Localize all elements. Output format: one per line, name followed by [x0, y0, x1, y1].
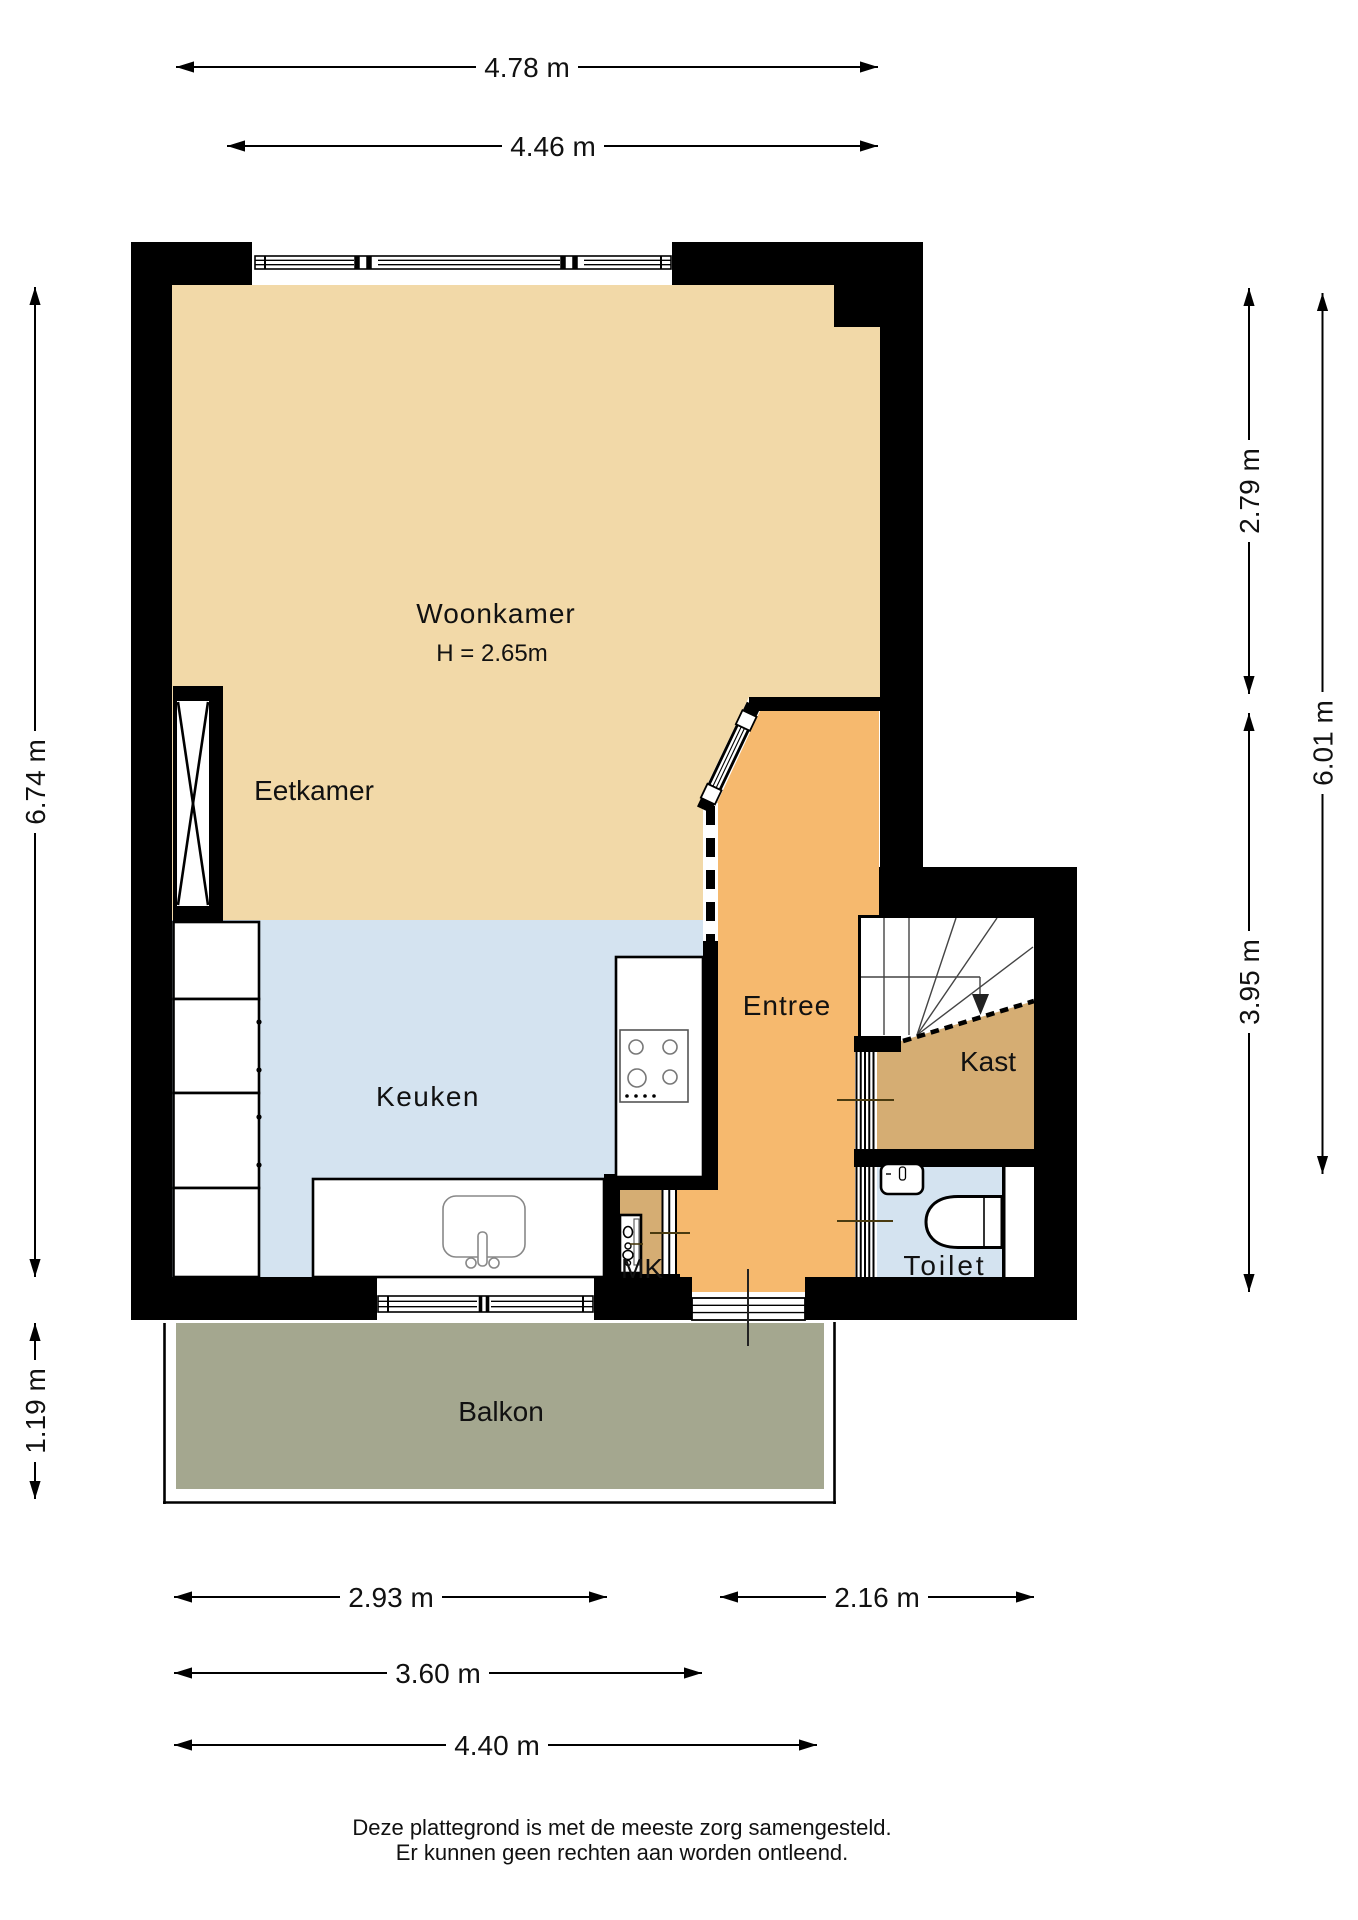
svg-text:1.19 m: 1.19 m	[20, 1368, 51, 1454]
svg-text:Deze plattegrond is met de mee: Deze plattegrond is met de meeste zorg s…	[352, 1815, 891, 1840]
svg-text:4.46 m: 4.46 m	[510, 131, 596, 162]
svg-text:4.78 m: 4.78 m	[484, 52, 570, 83]
svg-text:Woonkamer: Woonkamer	[416, 598, 575, 629]
svg-text:H = 2.65m: H = 2.65m	[436, 640, 547, 667]
svg-text:Keuken: Keuken	[376, 1081, 480, 1112]
svg-text:6.01 m: 6.01 m	[1308, 700, 1339, 786]
svg-text:3.95 m: 3.95 m	[1234, 939, 1265, 1025]
svg-text:2.79 m: 2.79 m	[1234, 448, 1265, 534]
svg-text:Balkon: Balkon	[458, 1396, 544, 1427]
svg-text:Toilet: Toilet	[903, 1250, 986, 1281]
svg-text:4.40 m: 4.40 m	[454, 1730, 540, 1761]
svg-text:Entree: Entree	[743, 990, 832, 1021]
svg-text:3.60 m: 3.60 m	[395, 1658, 481, 1689]
svg-text:2.16 m: 2.16 m	[834, 1582, 920, 1613]
svg-text:Kast: Kast	[960, 1046, 1016, 1077]
svg-text:2.93 m: 2.93 m	[348, 1582, 434, 1613]
svg-text:6.74 m: 6.74 m	[20, 739, 51, 825]
svg-text:MK: MK	[621, 1253, 663, 1284]
svg-text:Er kunnen geen rechten aan wor: Er kunnen geen rechten aan worden ontlee…	[396, 1840, 849, 1865]
svg-text:Eetkamer: Eetkamer	[254, 775, 374, 806]
